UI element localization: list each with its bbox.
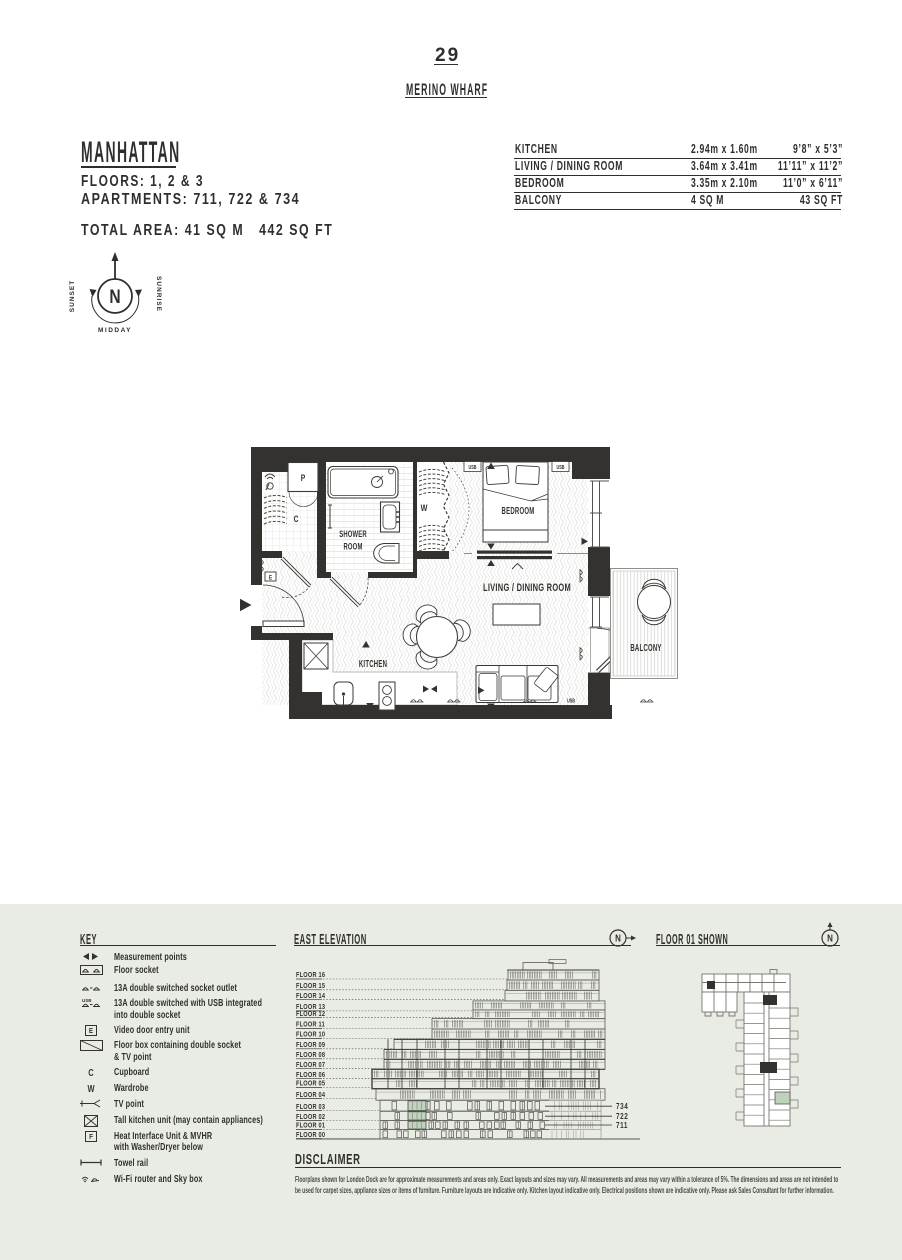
svg-text:USB: USB [556,464,565,471]
svg-text:734: 734 [616,1101,629,1111]
svg-text:SUNRISE: SUNRISE [155,276,162,312]
svg-text:FLOOR 03: FLOOR 03 [296,1103,325,1111]
svg-text:FLOOR 06: FLOOR 06 [296,1071,325,1079]
svg-text:P: P [301,473,306,483]
svg-text:SUNSET: SUNSET [69,280,76,312]
svg-text:FLOOR 02: FLOOR 02 [296,1113,325,1121]
svg-text:FLOOR 10: FLOOR 10 [296,1031,325,1039]
svg-text:N: N [615,933,621,944]
svg-text:N: N [827,933,833,944]
svg-text:F: F [89,1133,93,1140]
svg-text:FLOOR 14: FLOOR 14 [296,992,325,1000]
svg-text:MIDDAY: MIDDAY [98,327,132,334]
svg-text:BEDROOM: BEDROOM [502,506,535,517]
svg-text:FLOOR 07: FLOOR 07 [296,1061,325,1069]
svg-text:KITCHEN: KITCHEN [359,659,387,670]
svg-text:FLOOR 11: FLOOR 11 [296,1021,325,1029]
svg-text:FLOOR 04: FLOOR 04 [296,1091,325,1099]
svg-text:USB: USB [82,998,92,1003]
svg-text:E: E [269,575,273,582]
svg-text:USB: USB [567,698,576,705]
svg-text:C: C [294,514,299,524]
svg-text:E: E [89,1027,94,1034]
svg-text:FLOOR 08: FLOOR 08 [296,1051,325,1059]
svg-text:FLOOR 01: FLOOR 01 [296,1122,325,1130]
svg-text:C: C [88,1067,94,1078]
svg-text:W: W [421,503,428,513]
svg-text:FLOOR 09: FLOOR 09 [296,1041,325,1049]
svg-text:FLOOR 00: FLOOR 00 [296,1131,325,1139]
svg-text:SHOWER: SHOWER [339,529,367,540]
svg-text:FLOOR 15: FLOOR 15 [296,982,325,990]
svg-text:FLOOR 16: FLOOR 16 [296,972,325,980]
svg-text:W: W [87,1083,95,1094]
svg-text:FLOOR 05: FLOOR 05 [296,1080,325,1088]
svg-text:USB: USB [468,464,477,471]
svg-text:711: 711 [616,1120,628,1130]
svg-text:LIVING / DINING ROOM: LIVING / DINING ROOM [483,580,571,593]
svg-text:BALCONY: BALCONY [630,643,661,654]
svg-text:N: N [109,286,120,308]
svg-text:FLOOR 13: FLOOR 13 [296,1003,325,1011]
svg-text:ROOM: ROOM [343,541,362,552]
svg-text:FLOOR 12: FLOOR 12 [296,1010,325,1018]
